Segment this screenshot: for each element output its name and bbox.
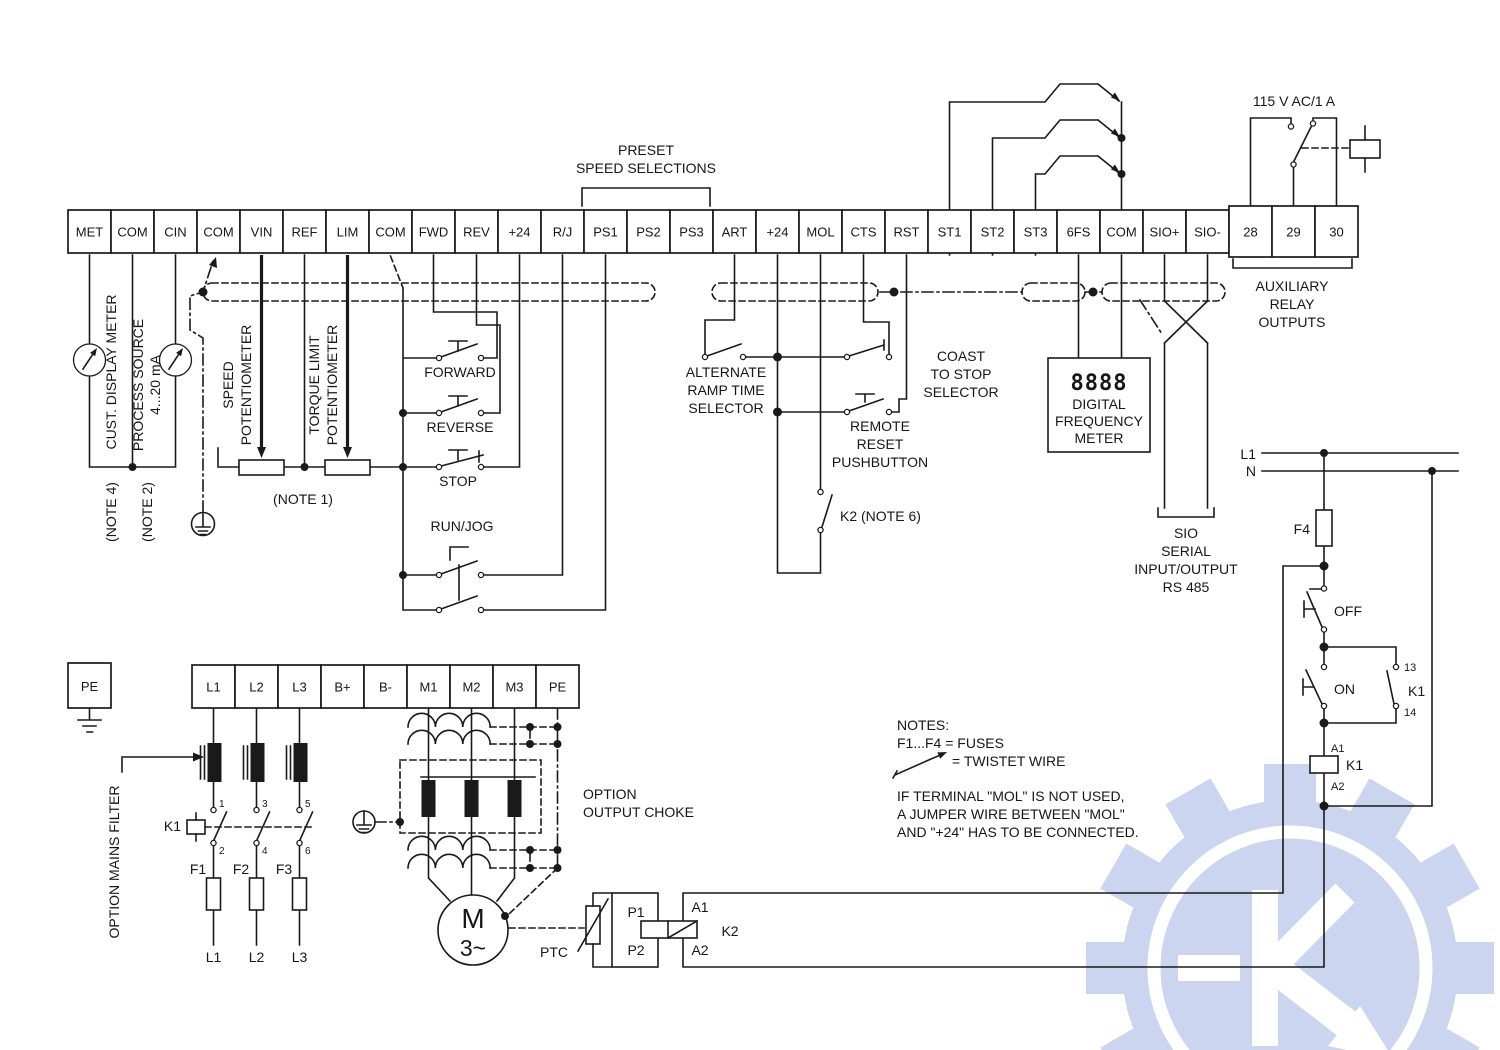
shield-oval-sio (1102, 283, 1225, 301)
remote-label2: RESET (857, 436, 904, 452)
coast-label1: COAST (937, 348, 986, 364)
runjog-linkage (450, 547, 468, 600)
motor-leads (429, 833, 515, 901)
choke-coil-m1 (422, 780, 436, 817)
choke-coil-m2 (465, 780, 479, 817)
terminal-label-mol: MOL (806, 225, 834, 240)
selector-section: ALTERNATE RAMP TIME SELECTOR COAST TO ST… (686, 255, 999, 573)
dfm-label2: FREQUENCY (1055, 413, 1144, 429)
contact-point (818, 527, 823, 532)
k2-label: K2 (721, 923, 738, 939)
remote-label1: REMOTE (850, 418, 910, 434)
aux-relay-coil (1350, 140, 1380, 158)
terminal-label-st2: ST2 (981, 225, 1005, 240)
notes-title: NOTES: (897, 717, 949, 733)
torque-pot-label2: POTENTIOMETER (324, 325, 340, 446)
k2-coil-bar (641, 921, 697, 938)
contact-point (1393, 703, 1398, 708)
com-bus (403, 288, 436, 610)
torque-potentiometer (325, 460, 370, 475)
ground-glyph-left (196, 514, 210, 535)
contact-num-6: 6 (305, 846, 311, 857)
contact-point (478, 410, 483, 415)
terminal-label-com: COM (375, 225, 405, 240)
k1-main-coil (187, 820, 205, 834)
vfd-wiring-diagram: CUST. DISPLAY METER (NOTE 4) PROCESS SOU… (0, 0, 1500, 1050)
junction-dot (301, 463, 309, 471)
p1-label: P1 (627, 904, 644, 920)
n-line-label: N (1246, 463, 1256, 479)
notes-section: NOTES: F1...F4 = FUSES = TWISTET WIRE IF… (893, 717, 1139, 840)
junction-dot (129, 463, 137, 471)
junction-dot (1089, 288, 1098, 297)
gear-k-watermark (1086, 764, 1494, 1050)
dfm-label3: METER (1075, 430, 1124, 446)
alt-ramp-label1: ALTERNATE (686, 364, 766, 380)
filter-pointer-line (122, 757, 195, 772)
shield-dashed-links (490, 727, 558, 914)
off-label: OFF (1334, 603, 1362, 619)
frequency-meter-section: 8888 DIGITAL FREQUENCY METER (1048, 255, 1150, 452)
contact-point (478, 572, 483, 577)
terminal-label-ps3: PS3 (679, 225, 704, 240)
terminal-label-30: 30 (1329, 225, 1343, 240)
junction-dot (1118, 170, 1126, 178)
a1-k2-label: A1 (691, 899, 708, 915)
l1-bottom-label: L1 (206, 949, 222, 965)
filter-block-l1 (208, 743, 222, 782)
coast-label3: SELECTOR (923, 384, 998, 400)
sio-label4: RS 485 (1163, 579, 1210, 595)
alt-ramp-label3: SELECTOR (688, 400, 763, 416)
l2-bottom-label: L2 (249, 949, 265, 965)
motor-phase-label: 3~ (460, 935, 486, 961)
ptc-k2-section: P1 P2 A1 A2 K2 PTC (509, 893, 739, 967)
dfm-label1: DIGITAL (1072, 396, 1126, 412)
reverse-label: REVERSE (427, 419, 494, 435)
torque-wiper-arrow-icon (343, 447, 352, 458)
pushbutton-actuators (449, 341, 467, 460)
terminal-label-cin: CIN (164, 225, 186, 240)
contact-num-1: 1 (219, 799, 225, 810)
terminal-label-com: COM (1106, 225, 1136, 240)
k1-coil (1310, 756, 1338, 773)
junction-dot (399, 409, 407, 417)
contact-13-label: 13 (1404, 662, 1416, 674)
junction-dot (199, 288, 208, 297)
k1-main-label: K1 (164, 818, 181, 834)
contact-point (886, 409, 891, 414)
process-source-label: PROCESS SOURCE (130, 319, 146, 451)
junction-dot (554, 740, 562, 748)
contact-point (436, 607, 441, 612)
contact-point (1288, 124, 1293, 129)
terminal-label-pe: PE (549, 680, 567, 695)
option-choke-label2: OUTPUT CHOKE (583, 804, 694, 820)
ground-glyph-choke (357, 811, 371, 833)
stop-label: STOP (439, 473, 477, 489)
junction-dot (773, 353, 782, 362)
l1-line-label: L1 (1240, 446, 1256, 462)
ptc-label: PTC (540, 944, 568, 960)
contact-point (1321, 586, 1326, 591)
note4-label: (NOTE 4) (103, 482, 119, 542)
aux-terminal-strip: 282930 (1229, 206, 1358, 257)
top-terminal-strip: METCOMCINCOMVINREFLIMCOMFWDREV+24R/JPS1P… (68, 210, 1229, 253)
aux-relay-blade (1294, 127, 1312, 162)
terminal-label-ps2: PS2 (636, 225, 661, 240)
forward-label: FORWARD (424, 364, 496, 380)
contact-point (436, 410, 441, 415)
junction-dot (526, 740, 534, 748)
contact-point (844, 354, 849, 359)
contact-point (254, 840, 259, 845)
terminal-label-l3: L3 (292, 680, 306, 695)
junction-dot (526, 723, 534, 731)
sio-label1: SIO (1174, 525, 1198, 541)
contact-num-3: 3 (262, 799, 268, 810)
shield-ground-line (190, 261, 213, 512)
junction-dot (501, 912, 509, 920)
terminal-label-m1: M1 (419, 680, 437, 695)
terminal-label-st1: ST1 (938, 225, 962, 240)
junction-dot (526, 864, 534, 872)
junction-dot (890, 288, 899, 297)
terminal-label-ps1: PS1 (593, 225, 618, 240)
fuse-f2 (250, 878, 264, 910)
note2-label: (NOTE 2) (139, 482, 155, 542)
option-mains-filter-label: OPTION MAINS FILTER (106, 786, 122, 939)
preset-bracket (582, 188, 710, 206)
off-button-symbol (1304, 589, 1326, 627)
speed-pot-label1: SPEED (220, 361, 236, 408)
terminal-label-+24: +24 (766, 225, 788, 240)
sio-twisted-wires (1165, 255, 1208, 508)
preset-label2: SPEED SELECTIONS (576, 160, 716, 176)
fuse-f3 (293, 878, 307, 910)
contact-point (478, 607, 483, 612)
a2-k2-label: A2 (691, 942, 708, 958)
contact-point (211, 807, 216, 812)
terminal-label-r/j: R/J (553, 225, 573, 240)
speed-wiper-arrow-icon (257, 447, 266, 458)
p2-label: P2 (627, 942, 644, 958)
remote-label3: PUSHBUTTON (832, 454, 928, 470)
junction-dot (1320, 643, 1329, 652)
contact-num-5: 5 (305, 799, 311, 810)
volt-label: 115 V AC/1 A (1253, 93, 1336, 109)
shield-drain-links (880, 292, 1162, 334)
option-choke-label1: OPTION (583, 786, 637, 802)
pe-ground-symbol (78, 708, 101, 732)
terminal-label-b-: B- (379, 680, 392, 695)
terminal-label-art: ART (722, 225, 748, 240)
contact-14-label: 14 (1404, 707, 1416, 719)
fuse-f4 (1316, 510, 1332, 546)
terminal-label-rev: REV (463, 225, 490, 240)
terminal-label-l1: L1 (206, 680, 220, 695)
contact-point (886, 354, 891, 359)
terminal-label-+24: +24 (508, 225, 530, 240)
contact-point (1321, 627, 1326, 632)
filter-block-l2 (251, 743, 265, 782)
terminal-label-ref: REF (292, 225, 318, 240)
f1-label: F1 (190, 861, 207, 877)
terminal-label-sio+: SIO+ (1150, 225, 1180, 240)
aux-label3: OUTPUTS (1259, 314, 1326, 330)
k1-aux-contact-blade (1387, 671, 1394, 704)
aux-label2: RELAY (1270, 296, 1316, 312)
aux-output-bracket (1233, 259, 1352, 268)
junction-dot (1320, 449, 1328, 457)
wiring-diagram-page: CUST. DISPLAY METER (NOTE 4) PROCESS SOU… (0, 0, 1500, 1050)
coast-label2: TO STOP (931, 366, 992, 382)
k2-note6-label: K2 (NOTE 6) (840, 508, 921, 524)
meter-feed-wires (1079, 255, 1122, 358)
terminal-label-lim: LIM (337, 225, 359, 240)
filter-block-l3 (294, 743, 308, 782)
sio-label2: SERIAL (1161, 543, 1211, 559)
filter-pointer-arrow-icon (193, 753, 204, 762)
seven-segment-display: 8888 (1071, 371, 1128, 396)
notes-fuses: F1...F4 = FUSES (897, 735, 1004, 751)
junction-dot (1320, 802, 1329, 811)
terminal-label-rst: RST (894, 225, 920, 240)
metering-section: CUST. DISPLAY METER (NOTE 4) PROCESS SOU… (74, 255, 192, 542)
direction-control-section: FORWARD REVERSE STOP RUN/JOG (391, 255, 606, 613)
terminal-label-m2: M2 (462, 680, 480, 695)
terminal-label-met: MET (76, 225, 104, 240)
notes-mol3: AND "+24" HAS TO BE CONNECTED. (897, 824, 1139, 840)
f2-label: F2 (233, 861, 250, 877)
shield-oval-control (712, 283, 878, 301)
contact-point (1321, 703, 1326, 708)
on-label: ON (1334, 681, 1355, 697)
a1-label: A1 (1331, 743, 1344, 755)
notes-mol1: IF TERMINAL "MOL" IS NOT USED, (897, 788, 1125, 804)
terminal-label-29: 29 (1286, 225, 1300, 240)
contact-point (1393, 664, 1398, 669)
terminal-label-28: 28 (1243, 225, 1257, 240)
preset-label1: PRESET (618, 142, 674, 158)
fuse-f1 (207, 878, 221, 910)
junction-dot (1428, 467, 1436, 475)
contact-point (297, 840, 302, 845)
note1-label: (NOTE 1) (273, 491, 333, 507)
contact-num-4: 4 (262, 846, 268, 857)
twisted-wire-arrow-icon (937, 752, 947, 759)
contact-point (254, 807, 259, 812)
process-range-label: 4...20 mA (147, 354, 163, 415)
preset-speed-section: PRESET SPEED SELECTIONS (576, 142, 716, 206)
contact-point (740, 354, 745, 359)
l3-bottom-label: L3 (292, 949, 308, 965)
sio-label3: INPUT/OUTPUT (1134, 561, 1238, 577)
terminal-label-l2: L2 (249, 680, 263, 695)
junction-dot (773, 408, 782, 417)
shield-oval-6fs (1022, 283, 1085, 301)
terminal-label-m3: M3 (505, 680, 523, 695)
on-button-symbol (1303, 670, 1322, 704)
junction-dot (1320, 562, 1329, 571)
a2-label: A2 (1331, 781, 1344, 793)
contact-point (478, 464, 483, 469)
shield-oval-analog (203, 283, 655, 301)
speed-pot-label2: POTENTIOMETER (238, 325, 254, 446)
junction-dot (1320, 719, 1329, 728)
contact-num-2: 2 (219, 846, 225, 857)
contact-point (1321, 664, 1326, 669)
junction-dot (399, 571, 407, 579)
emitter-arrow-icon (1111, 93, 1120, 102)
terminal-label-6fs: 6FS (1067, 225, 1091, 240)
terminal-label-com: COM (117, 225, 147, 240)
terminal-label-st3: ST3 (1024, 225, 1048, 240)
motor-m-label: M (461, 903, 484, 934)
contact-point (1291, 162, 1296, 167)
bottom-terminal-strip: L1L2L3B+B-M1M2M3PE (192, 665, 579, 708)
cust-display-meter-label: CUST. DISPLAY METER (103, 294, 119, 449)
speed-potentiometer (239, 460, 284, 475)
junction-dot (526, 846, 534, 854)
contact-point (844, 409, 849, 414)
terminal-label-cts: CTS (851, 225, 877, 240)
contact-point (818, 489, 823, 494)
potentiometer-section: SPEED POTENTIOMETER TORQUE LIMIT POTENTI… (218, 255, 403, 507)
contact-point (436, 572, 441, 577)
contact-point (478, 355, 483, 360)
junction-dot (396, 818, 404, 826)
terminal-label-vin: VIN (251, 225, 273, 240)
k1-coil-label: K1 (1346, 757, 1363, 773)
junction-dot (399, 463, 407, 471)
terminal-label-b+: B+ (334, 680, 350, 695)
contact-point (211, 840, 216, 845)
k1-aux-label: K1 (1408, 683, 1425, 699)
contact-point (436, 355, 441, 360)
f3-label: F3 (276, 861, 293, 877)
f4-label: F4 (1294, 521, 1311, 537)
pe-box-label: PE (81, 679, 99, 694)
shield-arrow-icon (209, 257, 217, 268)
junction-dot (1118, 134, 1126, 142)
contact-point (1310, 121, 1315, 126)
notes-twisted: = TWISTET WIRE (952, 753, 1065, 769)
contact-point (297, 807, 302, 812)
notes-mol2: A JUMPER WIRE BETWEEN "MOL" (897, 806, 1125, 822)
contact-point (436, 464, 441, 469)
junction-dot (554, 846, 562, 854)
pe-shield-line (530, 708, 558, 868)
choke-coil-m3 (508, 780, 522, 817)
contact-point (702, 354, 707, 359)
sio-bracket (1158, 508, 1214, 517)
aux-label1: AUXILIARY (1256, 278, 1330, 294)
terminal-label-sio-: SIO- (1194, 225, 1221, 240)
alt-ramp-label2: RAMP TIME (687, 382, 764, 398)
junction-dot (554, 864, 562, 872)
torque-pot-label1: TORQUE LIMIT (306, 335, 322, 435)
junction-dot (554, 723, 562, 731)
terminal-label-com: COM (203, 225, 233, 240)
runjog-label: RUN/JOG (431, 518, 494, 534)
emblem-bar (1178, 955, 1240, 981)
twisted-wire-symbol (893, 754, 943, 778)
terminal-label-fwd: FWD (419, 225, 449, 240)
